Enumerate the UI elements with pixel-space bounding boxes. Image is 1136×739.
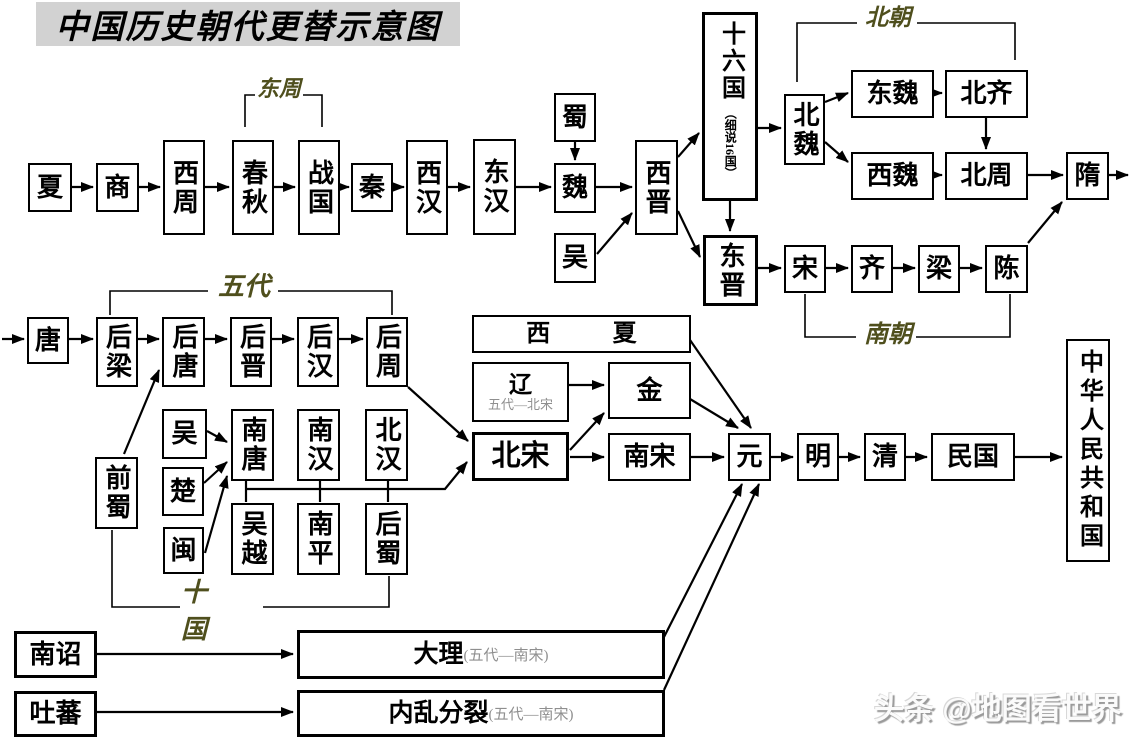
node-sui: 隋 bbox=[1066, 152, 1109, 200]
node-shu: 蜀 bbox=[554, 93, 596, 142]
node-eastern-wei: 东魏 bbox=[851, 70, 934, 118]
node-western-jin: 西晋 bbox=[635, 140, 678, 235]
node-liao-note: 五代—北宋 bbox=[488, 398, 553, 412]
watermark: 头条 @地图看世界 bbox=[874, 683, 1136, 729]
diagram-title: 中国历史朝代更替示意图 bbox=[36, 2, 460, 46]
node-liu-song: 宋 bbox=[784, 245, 826, 293]
node-southern-tang: 南唐 bbox=[231, 409, 274, 481]
node-wuyue: 吴越 bbox=[231, 503, 274, 575]
node-later-jin: 后晋 bbox=[230, 317, 272, 387]
node-northern-zhou: 北周 bbox=[945, 152, 1028, 200]
node-northern-han: 北汉 bbox=[365, 409, 408, 481]
node-liao-label: 辽 bbox=[509, 373, 532, 397]
node-wu-three-kingdoms: 吴 bbox=[554, 233, 596, 283]
era-label-eastern-zhou: 东周 bbox=[252, 74, 306, 100]
node-internal-strife: 内乱分裂 (五代—南宋) bbox=[297, 690, 665, 737]
node-southern-han: 南汉 bbox=[297, 409, 340, 481]
node-liao: 辽 五代—北宋 bbox=[472, 362, 569, 422]
node-later-zhou: 后周 bbox=[366, 317, 408, 387]
node-dali: 大理 (五代—南宋) bbox=[297, 630, 665, 679]
node-western-xia: 西夏 bbox=[472, 315, 691, 353]
era-label-northern-dynasties: 北朝 bbox=[858, 2, 918, 28]
node-internal-strife-note: (五代—南宋) bbox=[489, 708, 574, 724]
node-southern-qi: 齐 bbox=[851, 245, 893, 293]
node-western-zhou: 西周 bbox=[163, 140, 205, 235]
era-label-ten-kingdoms: 十 国 bbox=[181, 593, 263, 625]
node-northern-wei: 北魏 bbox=[784, 94, 825, 165]
era-label-five-dynasties: 五代 bbox=[209, 268, 279, 300]
node-later-shu: 后蜀 bbox=[365, 503, 408, 575]
node-southern-song: 南宋 bbox=[608, 433, 691, 481]
node-ming: 明 bbox=[797, 433, 839, 481]
node-dali-label: 大理 bbox=[413, 642, 463, 668]
node-internal-strife-label: 内乱分裂 bbox=[388, 701, 488, 727]
node-sixteen-kingdoms-label: 十六国 bbox=[718, 21, 743, 102]
node-chu: 楚 bbox=[162, 467, 204, 516]
node-qin: 秦 bbox=[351, 163, 393, 212]
node-western-han: 西汉 bbox=[406, 140, 448, 235]
node-southern-liang: 梁 bbox=[918, 245, 960, 293]
node-jin-jurchen: 金 bbox=[608, 362, 691, 419]
node-eastern-han: 东汉 bbox=[473, 139, 516, 235]
node-wu-ten-kingdoms: 吴 bbox=[162, 409, 207, 459]
node-sixteen-kingdoms-note: （细说16国） bbox=[724, 107, 736, 179]
node-northern-qi: 北齐 bbox=[945, 70, 1028, 118]
node-yuan: 元 bbox=[728, 433, 771, 481]
era-label-southern-dynasties: 南朝 bbox=[857, 317, 919, 345]
node-shang: 商 bbox=[96, 163, 139, 212]
node-later-liang: 后梁 bbox=[96, 317, 138, 387]
node-spring-autumn: 春秋 bbox=[232, 140, 274, 235]
node-warring-states: 战国 bbox=[298, 140, 340, 235]
node-southern-chen: 陈 bbox=[985, 245, 1028, 293]
node-later-tang: 后唐 bbox=[162, 317, 205, 387]
node-tubo: 吐蕃 bbox=[14, 691, 97, 737]
node-dali-note: (五代—南宋) bbox=[464, 649, 549, 665]
node-sixteen-kingdoms: 十六国 （细说16国） bbox=[702, 12, 758, 201]
node-peoples-republic-of-china: 中华人民共和国 bbox=[1066, 339, 1110, 562]
node-western-xia-label: 西夏 bbox=[526, 322, 699, 347]
node-eastern-jin: 东晋 bbox=[703, 235, 758, 306]
node-western-wei: 西魏 bbox=[851, 152, 934, 200]
node-wei: 魏 bbox=[554, 163, 596, 213]
node-former-shu: 前蜀 bbox=[95, 457, 138, 529]
node-northern-song: 北宋 bbox=[472, 432, 569, 481]
node-min: 闽 bbox=[163, 527, 204, 574]
node-tang: 唐 bbox=[27, 317, 69, 364]
node-republic-of-china: 民国 bbox=[931, 433, 1015, 481]
dynasty-flowchart: 中国历史朝代更替示意图 头条 @地图看世界 东周 北朝 南朝 五代 十 国 夏 … bbox=[0, 0, 1136, 739]
node-later-han: 后汉 bbox=[297, 317, 339, 387]
node-nanping: 南平 bbox=[297, 503, 340, 575]
node-nanzhao: 南诏 bbox=[14, 631, 97, 678]
node-xia: 夏 bbox=[28, 163, 72, 212]
node-qing: 清 bbox=[864, 433, 906, 481]
